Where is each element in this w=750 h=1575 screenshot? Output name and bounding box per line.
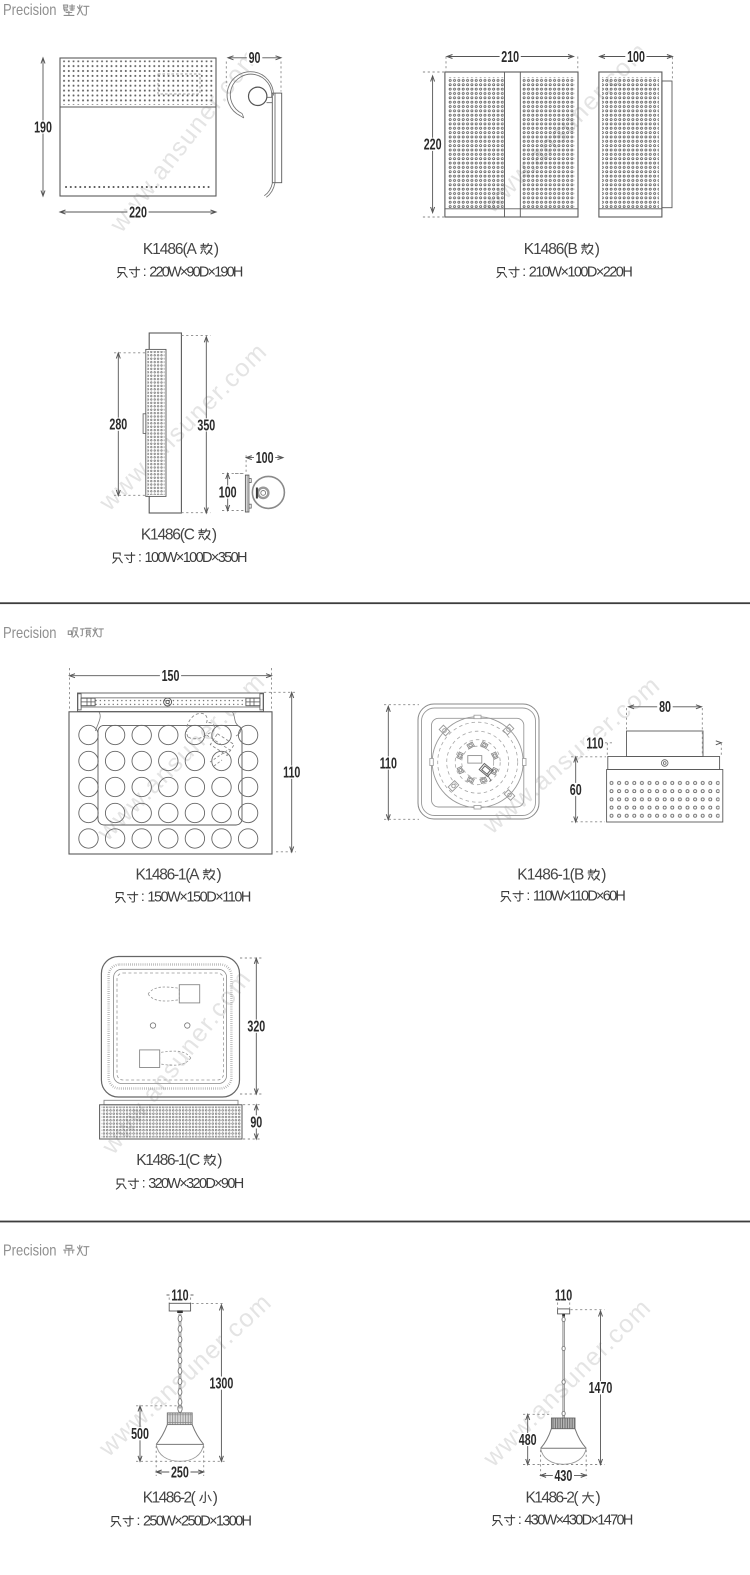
svg-text:500: 500 xyxy=(131,1425,149,1442)
svg-text::: : xyxy=(526,887,530,903)
svg-text:www.ansuner.com: www.ansuner.com xyxy=(477,1293,657,1473)
svg-text:80: 80 xyxy=(659,698,671,715)
svg-text:60: 60 xyxy=(570,781,582,798)
svg-text:K1486-1(B: K1486-1(B xyxy=(517,867,584,884)
svg-text:210: 210 xyxy=(501,48,519,65)
svg-text:110: 110 xyxy=(171,1286,188,1303)
svg-text:110: 110 xyxy=(283,764,300,781)
svg-text:1300: 1300 xyxy=(210,1375,234,1392)
svg-text:): ) xyxy=(596,1489,601,1506)
svg-text:430W×430D×1470H: 430W×430D×1470H xyxy=(524,1513,633,1529)
svg-text::: : xyxy=(137,1512,141,1528)
svg-text:100: 100 xyxy=(219,483,237,500)
svg-text::: : xyxy=(518,1511,522,1527)
svg-text:220: 220 xyxy=(129,203,147,220)
svg-text:): ) xyxy=(213,1489,218,1506)
svg-text:320W×320D×90H: 320W×320D×90H xyxy=(148,1176,244,1192)
svg-text:110: 110 xyxy=(380,754,397,771)
svg-text:350: 350 xyxy=(197,416,215,433)
svg-text:250: 250 xyxy=(171,1463,189,1480)
svg-text:100: 100 xyxy=(256,449,274,466)
svg-text:90: 90 xyxy=(250,1113,262,1130)
svg-text::: : xyxy=(522,263,526,279)
svg-text:K1486(B: K1486(B xyxy=(524,241,578,258)
svg-text:190: 190 xyxy=(34,118,52,135)
svg-text:1470: 1470 xyxy=(589,1379,613,1396)
svg-text:110: 110 xyxy=(586,734,603,751)
svg-text:250W×250D×1300H: 250W×250D×1300H xyxy=(143,1514,252,1530)
svg-text:K1486-1(C: K1486-1(C xyxy=(136,1152,200,1169)
svg-text:): ) xyxy=(595,241,600,258)
svg-text::: : xyxy=(142,1175,146,1191)
svg-text:): ) xyxy=(601,867,606,884)
svg-text:K1486(A: K1486(A xyxy=(143,241,198,258)
svg-text:280: 280 xyxy=(109,416,127,433)
svg-text:110: 110 xyxy=(555,1286,572,1303)
svg-text:150W×150D×110H: 150W×150D×110H xyxy=(147,890,251,906)
svg-text:): ) xyxy=(214,241,219,258)
svg-text:110W×110D×60H: 110W×110D×60H xyxy=(533,889,626,905)
svg-text:430: 430 xyxy=(554,1467,572,1484)
svg-text:220: 220 xyxy=(424,136,442,153)
svg-text:320: 320 xyxy=(247,1018,265,1035)
svg-text:K1486(C: K1486(C xyxy=(141,526,195,543)
svg-text:): ) xyxy=(217,1152,222,1169)
svg-text::: : xyxy=(138,549,142,565)
svg-text:90: 90 xyxy=(249,49,261,66)
svg-text:K1486-2(: K1486-2( xyxy=(526,1489,580,1506)
svg-text:100W×100D×350H: 100W×100D×350H xyxy=(145,550,248,566)
svg-text::: : xyxy=(141,888,145,904)
svg-text:K1486-2(: K1486-2( xyxy=(143,1489,197,1506)
svg-text:Precision: Precision xyxy=(3,625,57,642)
svg-text:210W×100D×220H: 210W×100D×220H xyxy=(529,265,633,281)
svg-text:100: 100 xyxy=(627,48,645,65)
svg-text:): ) xyxy=(217,866,222,883)
svg-text:K1486-1(A: K1486-1(A xyxy=(136,866,201,883)
svg-text:220W×90D×190H: 220W×90D×190H xyxy=(149,265,243,281)
svg-text:Precision: Precision xyxy=(3,2,57,19)
svg-text:): ) xyxy=(212,526,217,543)
svg-text::: : xyxy=(143,263,147,279)
svg-text:Precision: Precision xyxy=(3,1243,57,1260)
svg-text:150: 150 xyxy=(162,667,180,684)
svg-text:480: 480 xyxy=(519,1431,537,1448)
svg-text:www.ansuner.com: www.ansuner.com xyxy=(93,1288,278,1463)
